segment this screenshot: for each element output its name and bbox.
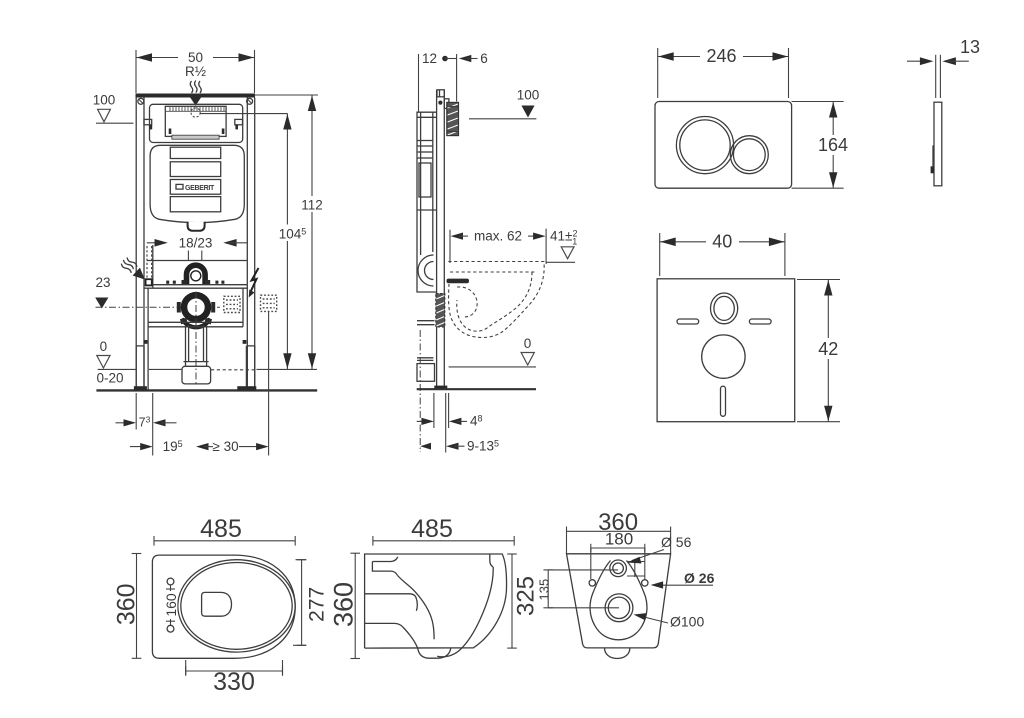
svg-text:330: 330 — [213, 668, 255, 696]
svg-text:R½: R½ — [185, 64, 206, 79]
svg-text:100: 100 — [93, 93, 116, 108]
svg-text:325: 325 — [513, 576, 540, 616]
svg-text:135: 135 — [537, 579, 552, 601]
svg-text:360: 360 — [329, 582, 359, 627]
svg-text:100: 100 — [517, 88, 540, 103]
svg-text:0: 0 — [100, 339, 108, 354]
svg-text:18/23: 18/23 — [179, 236, 213, 251]
svg-text:Ø 26: Ø 26 — [684, 570, 715, 586]
svg-text:40: 40 — [712, 231, 732, 251]
svg-text:160: 160 — [163, 593, 179, 617]
svg-text:GEBERIT: GEBERIT — [185, 185, 215, 192]
svg-text:6: 6 — [480, 51, 488, 66]
svg-text:41±21: 41±21 — [550, 228, 577, 246]
svg-text:0-20: 0-20 — [97, 371, 124, 386]
svg-text:485: 485 — [200, 515, 242, 543]
svg-text:max. 62: max. 62 — [474, 229, 522, 244]
svg-text:277: 277 — [306, 587, 329, 622]
svg-text:Ø100: Ø100 — [670, 614, 704, 630]
svg-text:42: 42 — [818, 339, 838, 359]
svg-text:12: 12 — [422, 51, 437, 66]
svg-text:180: 180 — [605, 530, 633, 549]
svg-text:112: 112 — [301, 198, 323, 213]
svg-text:50: 50 — [188, 50, 203, 65]
svg-text:13: 13 — [960, 37, 980, 57]
svg-text:Ø 56: Ø 56 — [661, 534, 692, 550]
svg-text:≥ 30: ≥ 30 — [212, 439, 238, 454]
svg-text:246: 246 — [706, 46, 736, 66]
svg-text:485: 485 — [411, 515, 453, 543]
svg-text:23: 23 — [95, 275, 110, 290]
svg-text:0: 0 — [524, 336, 532, 351]
svg-text:164: 164 — [818, 135, 848, 155]
